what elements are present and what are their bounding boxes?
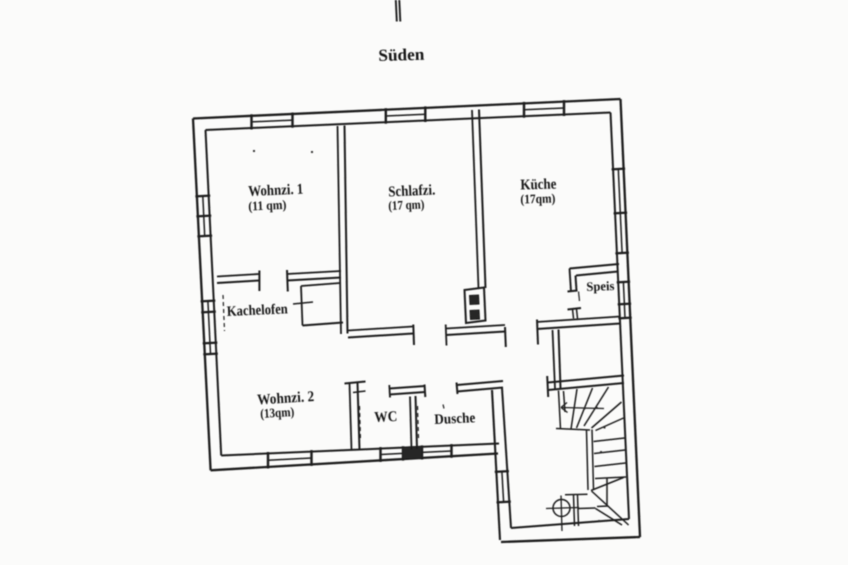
- svg-text:Dusche: Dusche: [434, 410, 476, 428]
- svg-text:(13qm): (13qm): [260, 404, 295, 421]
- svg-text:(11 qm): (11 qm): [248, 197, 287, 214]
- svg-text:WC: WC: [374, 409, 398, 426]
- svg-text:(17qm): (17qm): [520, 191, 555, 207]
- svg-text:Kachelofen: Kachelofen: [226, 301, 288, 320]
- svg-text:(17 qm): (17 qm): [388, 196, 425, 213]
- svg-text:Süden: Süden: [378, 45, 425, 65]
- svg-text:Speis: Speis: [586, 278, 615, 294]
